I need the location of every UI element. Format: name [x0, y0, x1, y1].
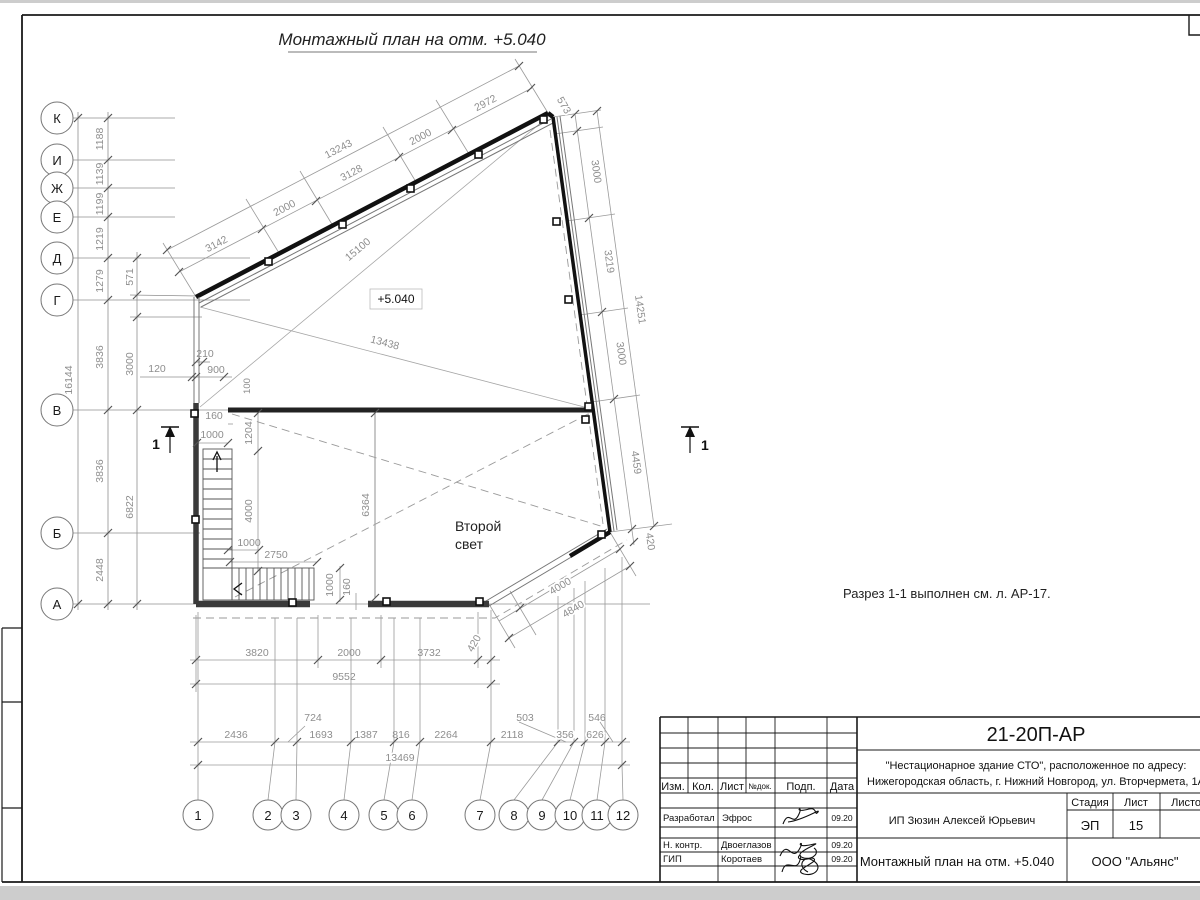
svg-text:420: 420: [465, 633, 484, 654]
svg-text:1387: 1387: [354, 729, 378, 741]
svg-text:11: 11: [590, 808, 604, 823]
sheet-title: Монтажный план на отм. +5.040: [278, 30, 546, 52]
section-mark-left: 1: [152, 426, 179, 453]
drawing-name: Монтажный план на отм. +5.040: [860, 854, 1054, 869]
dim-lines-interior: [197, 116, 592, 610]
staircase: [203, 449, 314, 600]
svg-text:3219: 3219: [601, 249, 616, 274]
svg-text:356: 356: [556, 729, 574, 741]
drawing-sheet: Монтажный план на отм. +5.040: [0, 0, 1200, 900]
page-title: Монтажный план на отм. +5.040: [278, 30, 546, 49]
svg-text:2972: 2972: [472, 93, 498, 115]
svg-text:160: 160: [341, 578, 353, 596]
svg-text:13438: 13438: [369, 334, 400, 353]
svg-text:210: 210: [196, 348, 214, 360]
svg-text:6: 6: [408, 808, 415, 823]
svg-text:Двоеглазов: Двоеглазов: [721, 840, 772, 851]
svg-text:Изм.: Изм.: [661, 781, 685, 793]
svg-text:6364: 6364: [360, 493, 372, 517]
svg-text:К: К: [53, 111, 61, 126]
dim-labels: 16144 1188 1139 1199 1219 1279 3836 3836…: [63, 93, 657, 764]
svg-text:8: 8: [510, 808, 517, 823]
svg-text:Лист: Лист: [1124, 797, 1148, 809]
svg-text:Б: Б: [53, 526, 62, 541]
svg-text:3000: 3000: [124, 352, 136, 376]
svg-text:3: 3: [292, 808, 299, 823]
svg-text:свет: свет: [455, 536, 484, 552]
svg-text:10: 10: [563, 808, 577, 823]
sheet-number: 15: [1129, 818, 1143, 833]
signatures: [780, 809, 818, 875]
svg-text:160: 160: [205, 410, 223, 422]
svg-text:2: 2: [264, 808, 271, 823]
svg-text:09.20: 09.20: [831, 854, 853, 864]
svg-text:2448: 2448: [94, 558, 106, 582]
sheet-frame: [2, 15, 1200, 882]
doc-number: 21-20П-АР: [987, 724, 1086, 746]
svg-text:+5.040: +5.040: [377, 292, 414, 306]
svg-text:Ж: Ж: [51, 181, 63, 196]
svg-text:626: 626: [586, 729, 604, 741]
svg-text:Д: Д: [53, 251, 62, 266]
svg-text:Лист: Лист: [720, 781, 744, 793]
client-name: ИП Зюзин Алексей Юрьевич: [889, 815, 1036, 827]
svg-text:1: 1: [701, 437, 709, 453]
svg-text:3820: 3820: [245, 647, 269, 659]
svg-text:2000: 2000: [271, 198, 297, 220]
svg-text:6822: 6822: [124, 495, 136, 519]
svg-text:546: 546: [588, 712, 606, 724]
dim-bottom-total: 9552: [332, 671, 356, 683]
axis-bubbles-bottom: 1 2 3 4 5 6 7 8 9 10 11 12: [183, 800, 638, 830]
svg-text:2000: 2000: [337, 647, 361, 659]
svg-text:Нижегородская область, г. Нижн: Нижегородская область, г. Нижний Новгоро…: [867, 776, 1200, 788]
svg-text:1139: 1139: [94, 163, 106, 186]
svg-text:Коротаев: Коротаев: [721, 854, 762, 865]
svg-text:4: 4: [340, 808, 347, 823]
svg-text:4459: 4459: [628, 450, 643, 475]
svg-text:9: 9: [538, 808, 545, 823]
svg-text:1219: 1219: [94, 227, 106, 251]
svg-text:№док.: №док.: [748, 782, 771, 791]
svg-text:900: 900: [207, 364, 225, 376]
svg-text:Эфрос: Эфрос: [722, 813, 752, 824]
svg-text:1000: 1000: [237, 537, 261, 549]
svg-text:1000: 1000: [324, 573, 336, 597]
section-mark-right: 1: [681, 426, 709, 453]
svg-text:1188: 1188: [94, 128, 106, 151]
svg-text:5: 5: [380, 808, 387, 823]
svg-text:724: 724: [304, 712, 322, 724]
svg-text:09.20: 09.20: [831, 840, 853, 850]
top-wall: [196, 113, 548, 297]
stage-value: ЭП: [1081, 818, 1100, 833]
svg-text:3836: 3836: [94, 459, 106, 483]
dim-right-total: 14251: [632, 294, 648, 325]
svg-text:420: 420: [643, 532, 657, 551]
svg-text:Кол.: Кол.: [692, 781, 714, 793]
svg-text:1279: 1279: [94, 269, 106, 293]
svg-text:1693: 1693: [309, 729, 333, 741]
svg-text:1199: 1199: [94, 193, 106, 216]
svg-text:В: В: [53, 403, 62, 418]
svg-text:Е: Е: [53, 210, 62, 225]
svg-text:3732: 3732: [417, 647, 441, 659]
svg-text:503: 503: [516, 712, 534, 724]
svg-text:ГИП: ГИП: [663, 854, 682, 865]
svg-text:816: 816: [392, 729, 410, 741]
svg-text:1204: 1204: [243, 421, 255, 445]
dim-lines-right: [553, 110, 672, 545]
svg-text:4840: 4840: [560, 598, 586, 620]
svg-text:3000: 3000: [613, 341, 628, 366]
svg-text:Стадия: Стадия: [1071, 797, 1109, 809]
company-name: ООО "Альянс": [1092, 854, 1179, 869]
svg-text:09.20: 09.20: [831, 813, 853, 823]
dim-left-total: 16144: [63, 365, 75, 394]
svg-text:571: 571: [124, 268, 136, 286]
dim-grid-total: 13469: [385, 752, 414, 764]
svg-text:И: И: [52, 153, 61, 168]
svg-text:1000: 1000: [200, 429, 224, 441]
svg-text:А: А: [53, 597, 62, 612]
axis-bubbles-left: К И Ж Е Д Г В Б А: [41, 102, 73, 620]
svg-text:2118: 2118: [501, 729, 524, 741]
svg-text:Листов: Листов: [1171, 797, 1200, 809]
svg-text:3836: 3836: [94, 345, 106, 369]
svg-text:3142: 3142: [203, 234, 229, 256]
svg-text:Подп.: Подп.: [786, 781, 815, 793]
svg-text:120: 120: [148, 363, 166, 375]
svg-text:2436: 2436: [224, 729, 248, 741]
svg-text:573: 573: [554, 95, 573, 116]
svg-text:4000: 4000: [243, 499, 255, 523]
svg-text:3000: 3000: [588, 159, 603, 184]
svg-text:Г: Г: [53, 293, 60, 308]
svg-text:7: 7: [476, 808, 483, 823]
dim-ticks: [74, 62, 658, 769]
section-note: Разрез 1-1 выполнен см. л. АР-17.: [843, 586, 1051, 601]
svg-text:15100: 15100: [343, 236, 373, 264]
svg-text:2264: 2264: [434, 729, 458, 741]
svg-text:Разработал: Разработал: [663, 813, 715, 824]
title-block: Изм. Кол. Лист №док. Подп. Дата Разработ…: [660, 717, 1200, 882]
svg-text:Дата: Дата: [830, 781, 855, 793]
svg-text:2000: 2000: [407, 127, 433, 149]
svg-text:Второй: Второй: [455, 518, 501, 534]
room-label: Второй свет: [455, 518, 501, 552]
svg-text:Н. контр.: Н. контр.: [663, 840, 702, 851]
dim-top-total: 13243: [323, 137, 355, 161]
svg-text:3128: 3128: [338, 163, 364, 185]
svg-text:"Нестационарное здание СТО", р: "Нестационарное здание СТО", расположенн…: [886, 760, 1187, 772]
svg-text:1: 1: [152, 436, 160, 452]
svg-text:1: 1: [194, 808, 201, 823]
stair-direction-icon: [234, 583, 242, 595]
svg-text:100: 100: [242, 378, 253, 394]
svg-text:12: 12: [616, 808, 630, 823]
level-mark: +5.040: [370, 289, 422, 309]
svg-text:2750: 2750: [264, 549, 288, 561]
